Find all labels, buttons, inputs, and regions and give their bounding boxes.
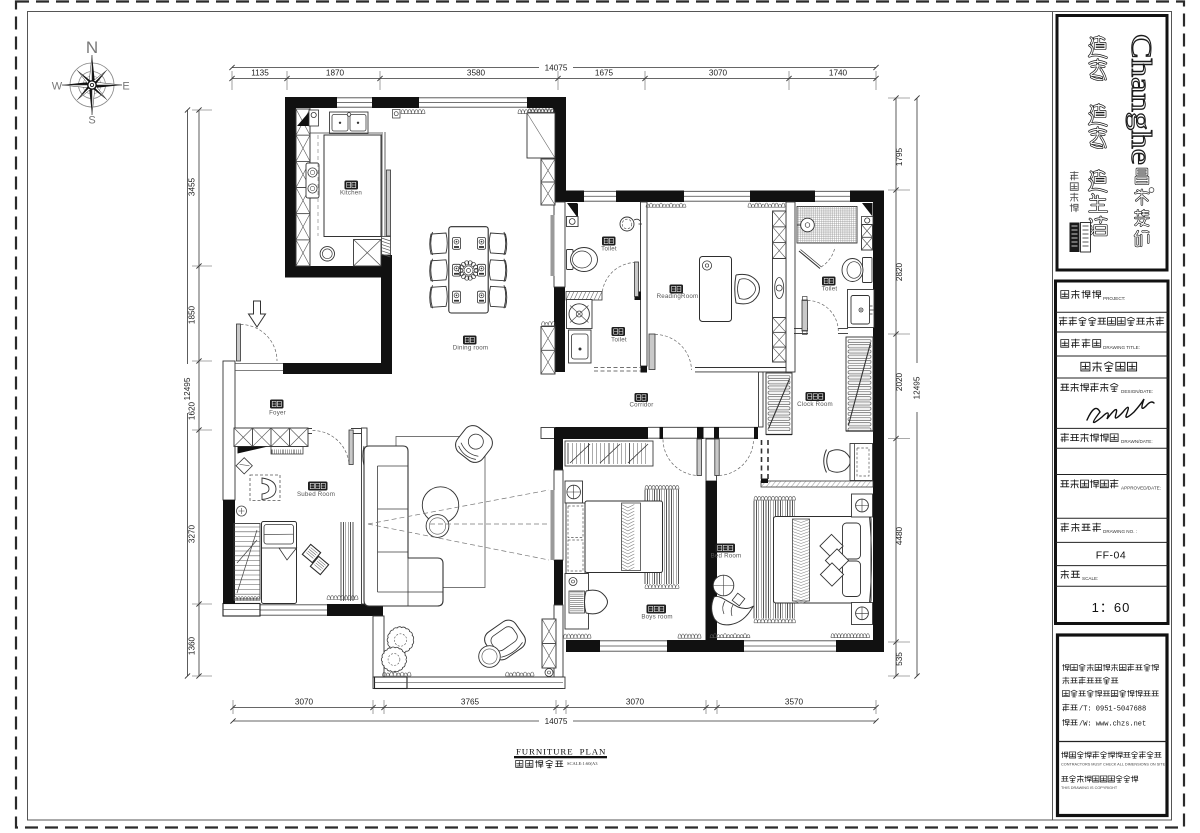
svg-text:Clock Room: Clock Room [797,401,833,408]
svg-text:1850: 1850 [188,305,197,324]
svg-text:12495: 12495 [183,377,192,400]
svg-text:Foyer: Foyer [269,410,286,417]
svg-text:1：60: 1：60 [1092,600,1131,615]
svg-text:Toilet: Toilet [822,286,838,293]
svg-text:1675: 1675 [595,69,614,78]
svg-text:3070: 3070 [626,698,645,707]
svg-text:W: W [52,81,63,93]
svg-text:3070: 3070 [709,69,728,78]
svg-text:3570: 3570 [785,698,804,707]
svg-text:DRAWING NO. :: DRAWING NO. : [1103,529,1137,534]
svg-text:1620: 1620 [188,401,197,420]
svg-text:CONTRACTORS MUST CHECK ALL DIM: CONTRACTORS MUST CHECK ALL DIMENSIONS ON… [1061,763,1166,767]
svg-text:Bed Room: Bed Room [711,553,742,560]
svg-text:1795: 1795 [895,147,904,166]
svg-text:FF-04: FF-04 [1096,550,1127,562]
svg-text:DESIGN/DATE:: DESIGN/DATE: [1121,389,1153,394]
svg-text:SCALE:1:60(A3: SCALE:1:60(A3 [567,761,598,766]
svg-text:Toilet: Toilet [601,246,617,253]
svg-text:E: E [122,81,129,93]
svg-text:4480: 4480 [895,526,904,545]
svg-text:Corridor: Corridor [630,402,654,409]
svg-text:1135: 1135 [251,69,269,78]
svg-text:Kitchen: Kitchen [340,190,362,197]
svg-text:/T: 0951-5047688: /T: 0951-5047688 [1079,706,1146,714]
svg-text:Changhe: Changhe [1125,34,1156,165]
svg-text:3270: 3270 [188,524,197,543]
svg-text:THIS DRAWING IS COPYRIGHT: THIS DRAWING IS COPYRIGHT [1061,786,1118,790]
svg-text:Subed Room: Subed Room [297,491,335,498]
svg-text:3070: 3070 [295,698,314,707]
svg-text:2820: 2820 [895,262,904,281]
svg-text:2020: 2020 [895,372,904,391]
svg-text:PROJECT:: PROJECT: [1103,296,1125,301]
svg-text:12495: 12495 [913,376,922,399]
svg-text:SCALE:: SCALE: [1082,576,1098,581]
svg-text:3580: 3580 [467,69,486,78]
svg-text:3765: 3765 [461,698,480,707]
svg-text:535: 535 [895,652,904,666]
svg-text:ReadingRoom: ReadingRoom [657,293,699,300]
svg-text:1870: 1870 [326,69,345,78]
svg-text:APPROVED/DATE:: APPROVED/DATE: [1121,486,1161,491]
svg-text:1740: 1740 [829,69,848,78]
svg-text:DRAWN/DATE:: DRAWN/DATE: [1121,439,1153,444]
svg-text:N: N [86,38,98,57]
svg-text:/W: www.chzs.net: /W: www.chzs.net [1079,721,1146,729]
svg-text:FURNITURE PLAN: FURNITURE PLAN [516,747,606,757]
svg-text:Boys room: Boys room [641,614,672,621]
svg-text:DRAWING TITLE:: DRAWING TITLE: [1103,345,1140,350]
svg-text:Dining room: Dining room [453,345,489,352]
svg-text:1360: 1360 [188,636,197,655]
svg-text:14075: 14075 [545,64,568,73]
svg-text:3455: 3455 [188,177,197,196]
svg-text:14075: 14075 [545,717,568,726]
svg-text:S: S [88,115,95,127]
svg-text:Toilet: Toilet [611,337,627,344]
